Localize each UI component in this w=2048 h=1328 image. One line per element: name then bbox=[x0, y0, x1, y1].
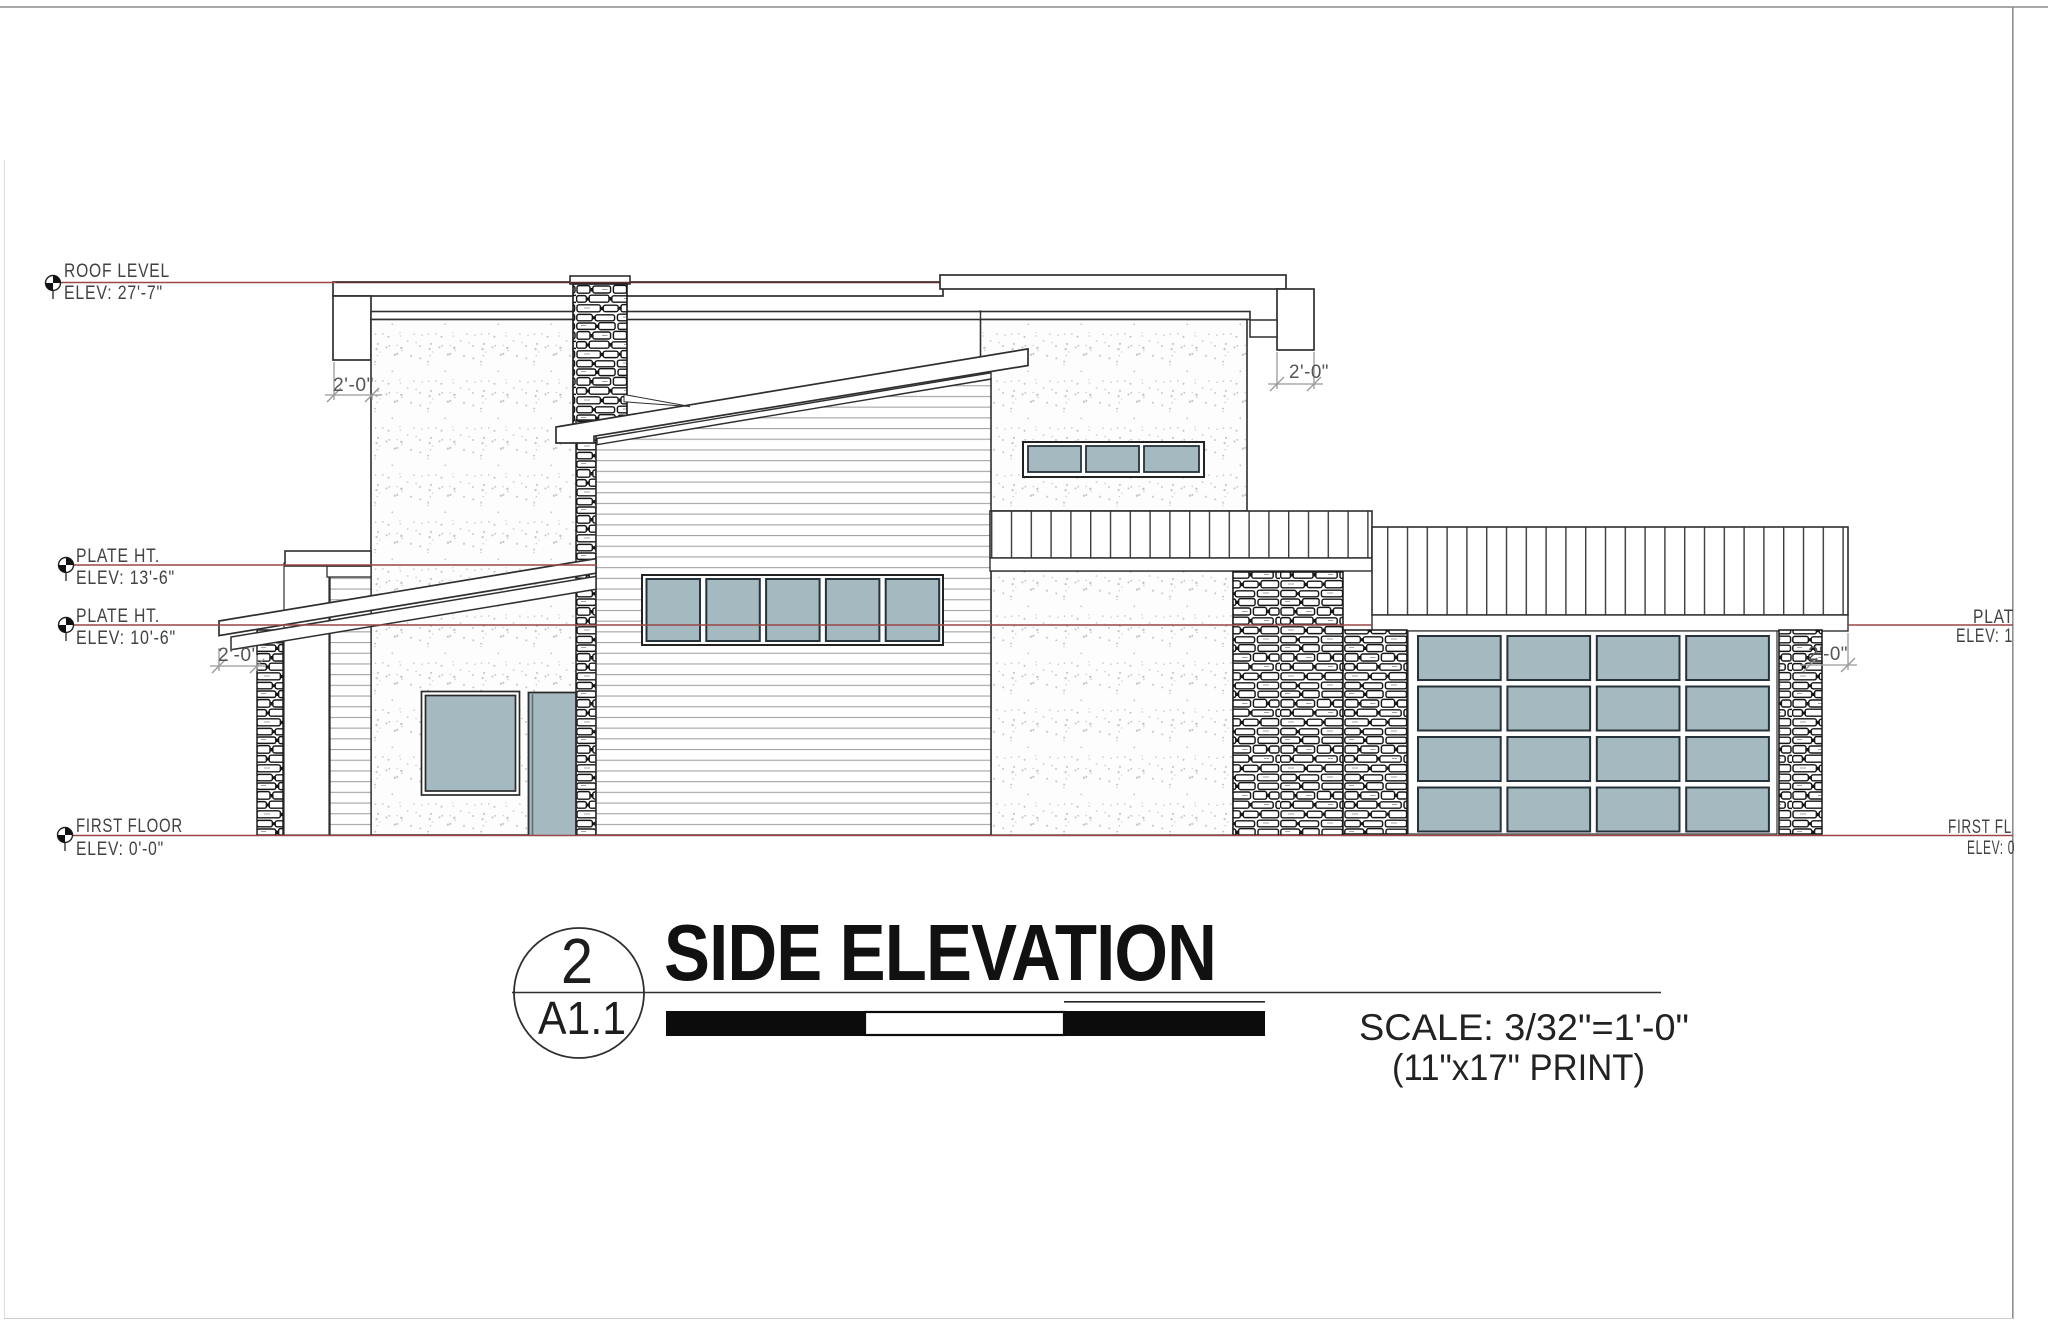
svg-text:ELEV: 27'-7": ELEV: 27'-7" bbox=[64, 282, 163, 304]
svg-text:2'-0": 2'-0" bbox=[1808, 644, 1848, 665]
svg-text:(11"x17" PRINT): (11"x17" PRINT) bbox=[1392, 1047, 1645, 1088]
svg-text:ROOF LEVEL: ROOF LEVEL bbox=[64, 260, 170, 282]
svg-text:ELEV: 1: ELEV: 1 bbox=[1956, 625, 2013, 647]
svg-text:SIDE ELEVATION: SIDE ELEVATION bbox=[664, 908, 1216, 997]
svg-text:2: 2 bbox=[561, 925, 593, 997]
svg-text:PLATE HT.: PLATE HT. bbox=[76, 545, 160, 567]
svg-text:ELEV: 13'-6": ELEV: 13'-6" bbox=[76, 567, 175, 589]
svg-text:A1.1: A1.1 bbox=[538, 992, 626, 1044]
svg-text:ELEV: 10'-6": ELEV: 10'-6" bbox=[76, 627, 176, 649]
svg-text:2'-0": 2'-0" bbox=[1289, 362, 1329, 383]
svg-text:SCALE: 3/32"=1'-0": SCALE: 3/32"=1'-0" bbox=[1359, 1007, 1689, 1048]
svg-text:ELEV: 0'-0": ELEV: 0'-0" bbox=[76, 838, 164, 860]
svg-text:PLATE HT.: PLATE HT. bbox=[76, 605, 160, 627]
svg-text:2'-0": 2'-0" bbox=[218, 645, 259, 666]
svg-text:FIRST FLOOR: FIRST FLOOR bbox=[76, 815, 183, 837]
svg-text:2'-0": 2'-0" bbox=[333, 375, 374, 396]
svg-text:FIRST FL: FIRST FL bbox=[1948, 816, 2012, 838]
svg-text:ELEV: 0: ELEV: 0 bbox=[1967, 837, 2015, 859]
